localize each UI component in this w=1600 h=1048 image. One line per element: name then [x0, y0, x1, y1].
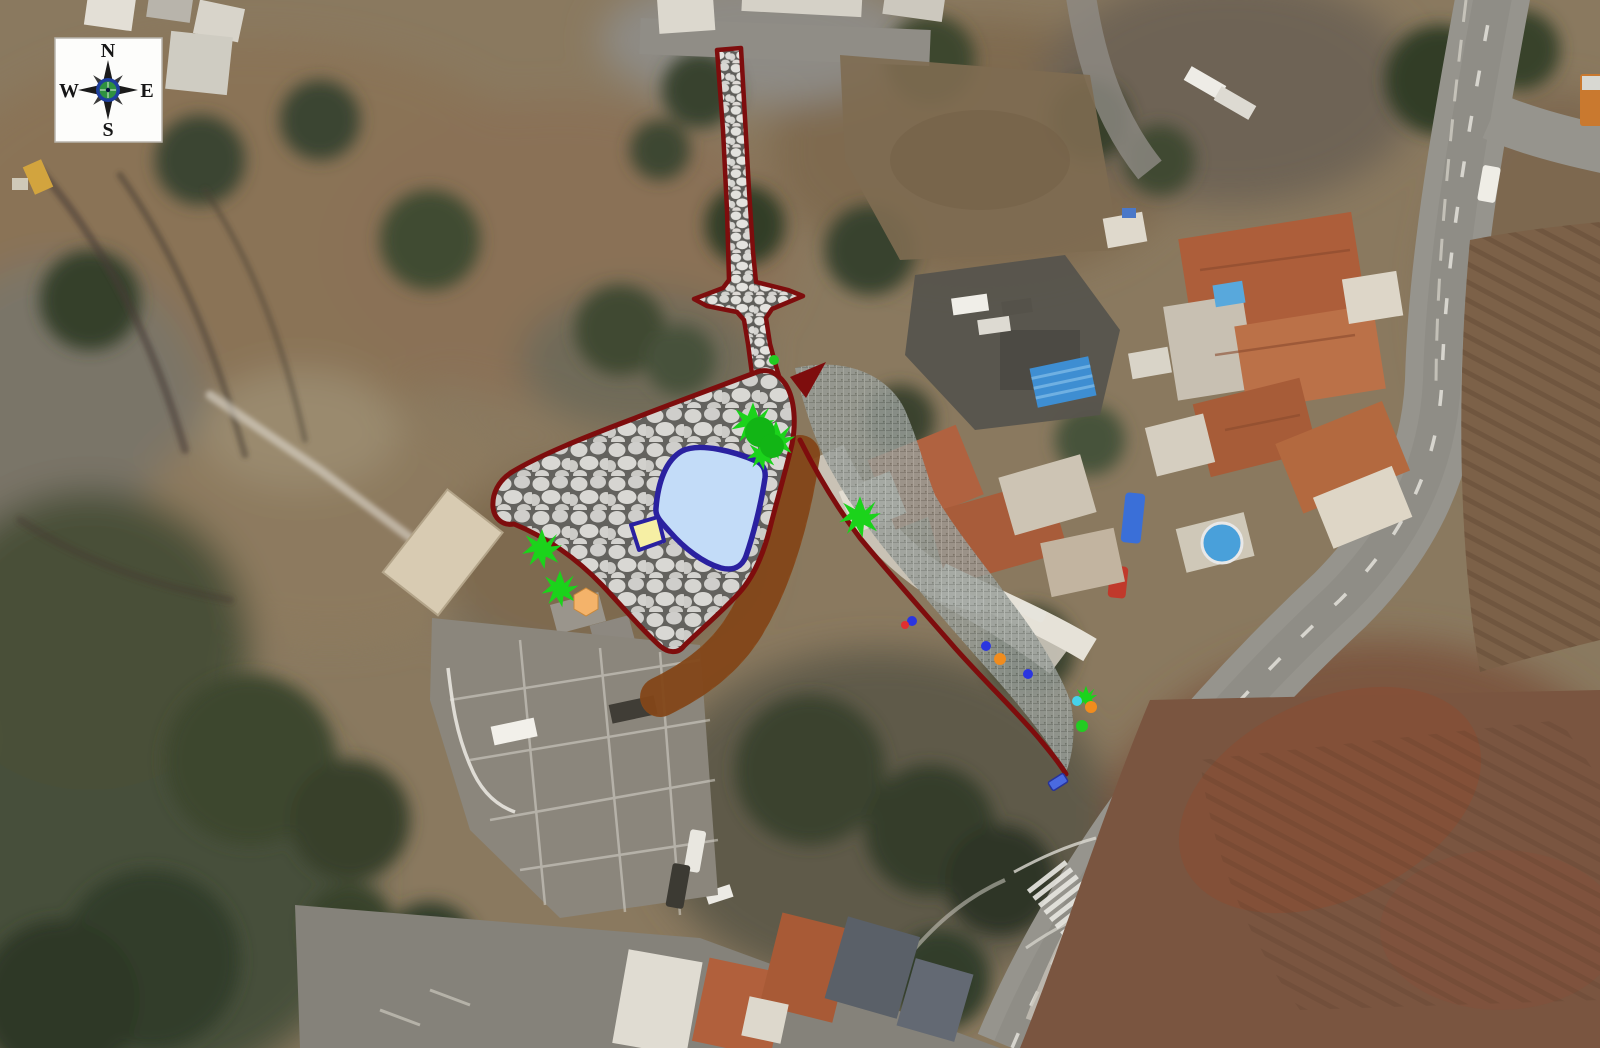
- dots_red-markers: [901, 621, 909, 629]
- tree_blob-marker: [760, 434, 784, 458]
- dots_blue-marker: [1023, 669, 1033, 679]
- dots_orange-marker: [994, 653, 1006, 665]
- field-upper-right-furrows: [1461, 222, 1600, 672]
- dots_blue-marker: [981, 641, 991, 651]
- aerial-site-plan: N E S W: [0, 0, 1600, 1048]
- dots_orange-marker: [1085, 701, 1097, 713]
- building: [165, 31, 233, 95]
- compass-west-label: W: [59, 80, 79, 102]
- building: [657, 0, 716, 34]
- building: [741, 996, 788, 1043]
- pool-round: [1202, 523, 1242, 563]
- pool-small: [1122, 208, 1136, 218]
- compass-south-label: S: [102, 119, 113, 141]
- dots_green-marker: [1076, 720, 1088, 732]
- dots_red-marker: [901, 621, 909, 629]
- compass-dot: [106, 88, 110, 92]
- road-top-center: [640, 36, 930, 48]
- compass-north-label: N: [101, 40, 116, 62]
- building: [1342, 271, 1403, 324]
- compass-rose: N E S W: [55, 38, 162, 142]
- dots_cyan-marker: [1072, 696, 1082, 706]
- dots_cyan-markers: [1072, 696, 1082, 706]
- building: [12, 178, 28, 190]
- dots_green-marker: [769, 355, 779, 365]
- pool-small: [1212, 281, 1245, 307]
- compass-east-label: E: [140, 80, 153, 102]
- truck-orange: [1580, 74, 1600, 126]
- field-top-center-shade: [890, 110, 1070, 210]
